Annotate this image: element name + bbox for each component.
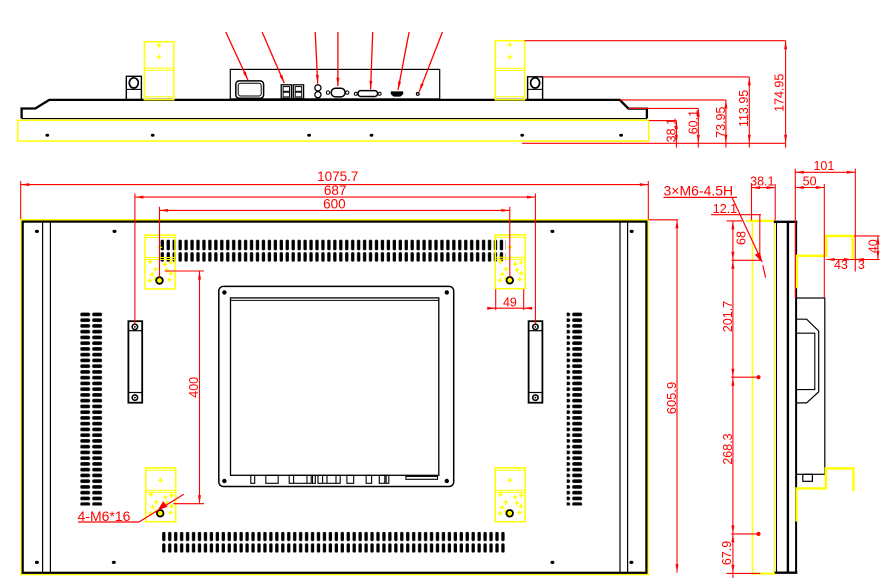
svg-text:268.3: 268.3 — [721, 433, 735, 464]
svg-text:73.95: 73.95 — [714, 107, 728, 138]
svg-text:605.9: 605.9 — [664, 382, 679, 415]
svg-text:12.1: 12.1 — [713, 202, 737, 216]
svg-text:201.7: 201.7 — [721, 301, 735, 332]
svg-text:174.95: 174.95 — [773, 74, 787, 112]
svg-text:1075.7: 1075.7 — [317, 169, 358, 184]
svg-text:38.1: 38.1 — [750, 175, 774, 189]
svg-text:50: 50 — [803, 175, 817, 189]
svg-text:687: 687 — [324, 183, 347, 198]
svg-text:113.95: 113.95 — [737, 90, 751, 127]
svg-text:4-M6*16: 4-M6*16 — [78, 508, 131, 524]
svg-text:49: 49 — [503, 296, 517, 310]
svg-text:600: 600 — [323, 197, 346, 212]
svg-text:3×M6-4.5H: 3×M6-4.5H — [664, 182, 734, 198]
svg-text:60.1: 60.1 — [686, 110, 700, 134]
svg-text:67.9: 67.9 — [720, 541, 734, 565]
svg-text:68: 68 — [734, 231, 748, 245]
svg-text:101: 101 — [813, 159, 834, 173]
svg-text:400: 400 — [187, 377, 201, 398]
svg-text:38.1: 38.1 — [665, 118, 679, 142]
